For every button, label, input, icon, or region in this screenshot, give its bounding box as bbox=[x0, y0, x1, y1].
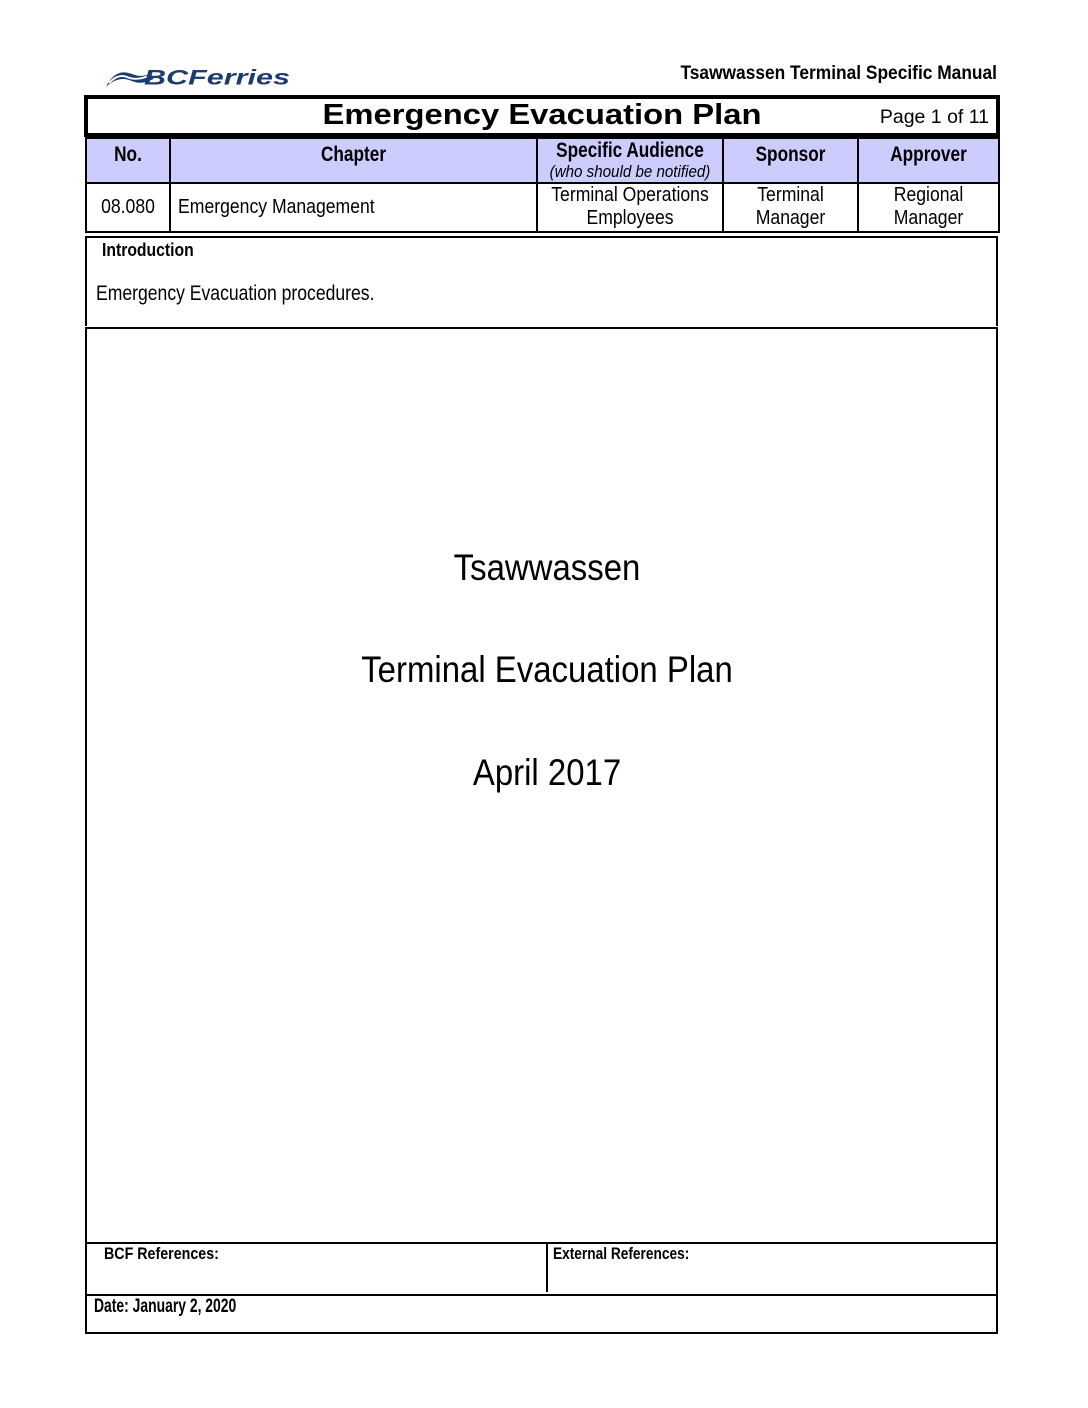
svg-text:BCFerries: BCFerries bbox=[144, 67, 290, 90]
